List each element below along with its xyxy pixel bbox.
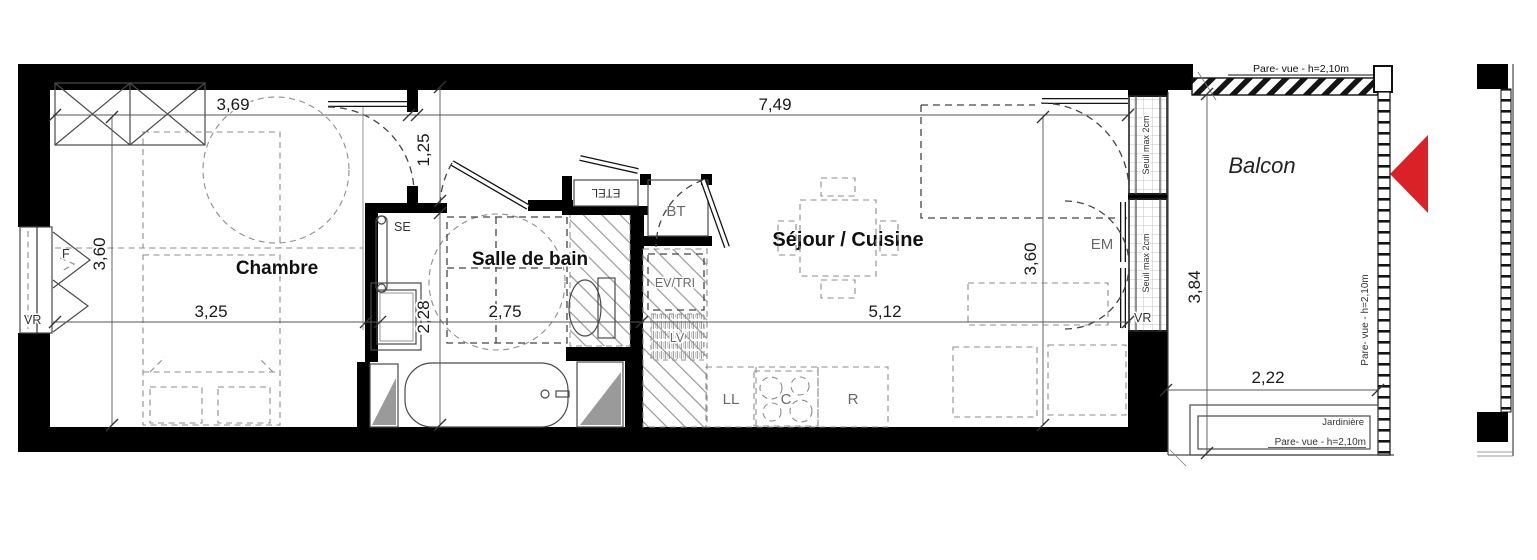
label-chambre: Chambre	[236, 258, 318, 279]
room-salle-de-bain: SE Salle de bain	[357, 163, 644, 427]
bathtub-tap	[556, 391, 569, 397]
dim-hall: 1,25	[414, 133, 433, 166]
label-em: EM	[1091, 236, 1114, 253]
room-sejour: Séjour / Cuisine	[772, 105, 1128, 417]
em-swing-bottom	[1065, 265, 1129, 329]
label-ll: LL	[723, 391, 740, 408]
bed	[143, 255, 280, 425]
em-swing-top	[1065, 201, 1129, 265]
balcony: Pare- vue - h=2,10m Balcon Pare- vue - h…	[1148, 63, 1428, 466]
label-pare-vue-jardiniere: Pare- vue - h=2,10m	[1275, 437, 1366, 448]
dim-chambre-side: 3,60	[90, 237, 109, 270]
label-etel: ETEL	[591, 186, 620, 198]
dim-sdb-side: 2,28	[414, 300, 433, 333]
label-window-f: F	[62, 247, 70, 261]
turning-circle-chambre	[203, 97, 349, 243]
dim-sdb-bottom: 2,75	[488, 302, 521, 321]
casement-chevron-2	[53, 280, 88, 332]
upper-window-swing	[1041, 103, 1129, 189]
pier-right-bottom	[1128, 330, 1168, 452]
label-lv: LV	[670, 331, 685, 345]
label-cooktop: C	[781, 391, 792, 408]
turning-circle-sdb	[429, 214, 565, 350]
chair-top	[821, 178, 855, 196]
label-fridge: R	[848, 391, 859, 408]
sofa-left	[953, 347, 1037, 417]
kitchen: EV/TRI LV LL C R	[643, 249, 888, 427]
burner-2	[791, 377, 809, 395]
pillow-right	[218, 387, 270, 423]
sdb-pier-br	[625, 361, 644, 427]
label-pare-vue-top: Pare- vue - h=2,10m	[1253, 63, 1349, 75]
balcony-railing	[1378, 92, 1390, 455]
dim-balcon-bottom: 2,22	[1251, 368, 1284, 387]
separator-railing	[1501, 89, 1511, 412]
red-arrow-icon	[1390, 135, 1428, 213]
pare-vue-screen-top	[1192, 78, 1378, 95]
wall-left-upper	[18, 64, 50, 227]
label-pare-vue-right: Pare- vue - h=2,10m	[1360, 274, 1371, 365]
furniture-zone-top	[921, 105, 1128, 218]
pier-hall-top	[407, 88, 418, 112]
bathtub	[405, 363, 568, 427]
sdb-wall-left-low	[357, 362, 370, 427]
etel-wall-bottom	[562, 206, 648, 215]
burner-3	[763, 403, 781, 421]
pier-hall-bottom	[407, 186, 418, 204]
sdb-door-swing	[440, 163, 452, 207]
neighbor-separator	[1477, 64, 1513, 456]
bathtub-drain	[541, 390, 549, 398]
label-sejour-cuisine: Séjour / Cuisine	[772, 229, 923, 251]
separator-block-top	[1477, 64, 1508, 89]
sofa-right	[1048, 345, 1126, 415]
chair-bottom	[821, 280, 855, 298]
window-left: F VR	[20, 227, 90, 333]
dim-chambre-bottom: 3,25	[194, 302, 227, 321]
clearance-zone	[143, 132, 280, 248]
balcony-wall-pier	[1148, 64, 1193, 90]
label-seuil-lower: Seuil max 2cm	[1141, 233, 1151, 292]
dim-sejour-side: 3,60	[1021, 242, 1040, 275]
label-jardiniere: Jardinière	[1322, 417, 1364, 428]
sdb-door-leaf	[452, 163, 528, 207]
separator-block-bottom	[1477, 412, 1508, 442]
sdb-clearance	[447, 217, 567, 343]
wall-bottom	[18, 427, 1168, 452]
dim-balcon-side: 3,84	[1185, 270, 1204, 303]
dim-sejour-bottom: 5,12	[868, 302, 901, 321]
chambre-door-swing	[328, 107, 414, 193]
right-glazing: Seuil max 2cm Seuil max 2cm EM VR	[1041, 96, 1167, 331]
pillow-left	[150, 387, 202, 423]
dim-chambre-top: 3,69	[216, 95, 249, 114]
bt-wall-bottom	[640, 236, 712, 246]
shaft-right-triangle	[580, 372, 621, 425]
label-seuil-upper: Seuil max 2cm	[1141, 115, 1151, 174]
sdb-wall-stub	[566, 347, 644, 361]
dim-sejour-top: 7,49	[758, 95, 791, 114]
label-towel-dryer: SE	[394, 220, 411, 234]
label-shutter-left: VR	[24, 313, 41, 327]
floor-plan: F VR Chambre	[0, 0, 1537, 560]
burner-4	[790, 400, 812, 422]
label-ev-tri: EV/TRI	[655, 276, 695, 290]
casement-chevron-1	[53, 232, 90, 288]
label-shutter-right: VR	[1134, 311, 1151, 325]
duct-zone	[570, 214, 630, 346]
label-salle-de-bain: Salle de bain	[472, 249, 588, 270]
coffee-table	[968, 283, 1108, 325]
wall-top	[18, 64, 1193, 90]
burner-1	[760, 377, 782, 399]
shaft-left-triangle	[372, 378, 396, 425]
label-balcon: Balcon	[1228, 153, 1295, 178]
floor-plan-drawing: F VR Chambre	[0, 0, 1537, 560]
etel-door-leaf	[580, 158, 638, 171]
screen-end-post	[1374, 66, 1392, 92]
